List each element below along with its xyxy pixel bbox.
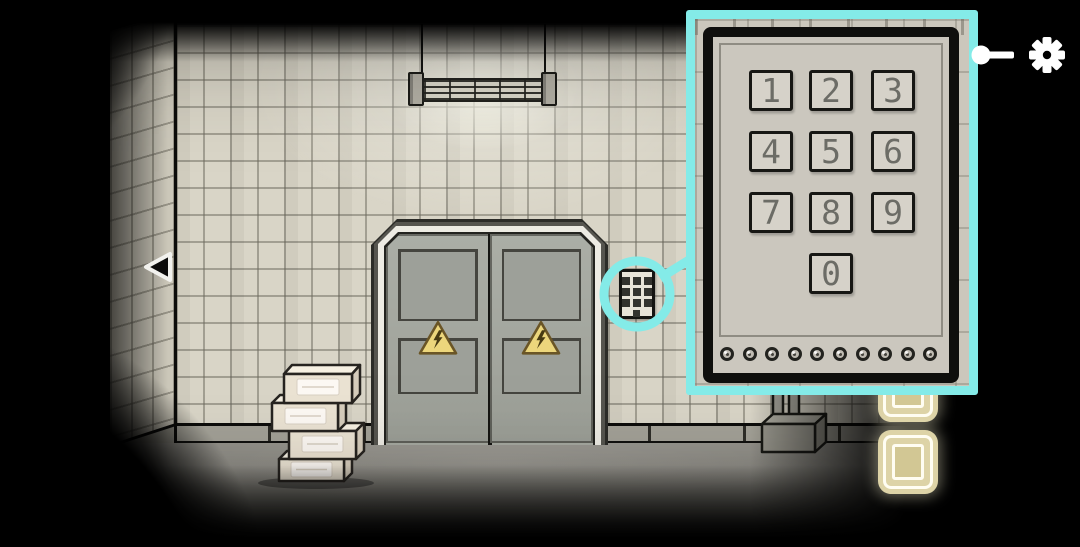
- keypad-key-7[interactable]: 7: [749, 192, 793, 233]
- keypad-key-3[interactable]: 3: [871, 70, 915, 111]
- indicator-light: [923, 347, 937, 361]
- keypad-device: 1234567890: [703, 27, 959, 383]
- indicator-light: [901, 347, 915, 361]
- keypad-key-6[interactable]: 6: [871, 131, 915, 172]
- indicator-light: [833, 347, 847, 361]
- left-arrow-icon[interactable]: [140, 250, 176, 284]
- box-top: [284, 365, 360, 374]
- indicator-light: [743, 347, 757, 361]
- indicator-light: [765, 347, 779, 361]
- gear-icon[interactable]: [1029, 37, 1065, 73]
- indicator-light: [720, 347, 734, 361]
- indicator-light: [788, 347, 802, 361]
- keypad-face: 1234567890: [713, 37, 949, 373]
- inventory-slot[interactable]: [878, 430, 938, 494]
- keypad-key-0[interactable]: 0: [809, 253, 853, 294]
- game-scene: 1234567890: [0, 0, 1080, 547]
- keypad-key-1[interactable]: 1: [749, 70, 793, 111]
- indicator-light: [856, 347, 870, 361]
- keypad-key-2[interactable]: 2: [809, 70, 853, 111]
- keypad-key-9[interactable]: 9: [871, 192, 915, 233]
- key-icon[interactable]: [969, 43, 1019, 67]
- keypad-key-4[interactable]: 4: [749, 131, 793, 172]
- pipe-base: [762, 391, 826, 452]
- keypad-zoom-popup: 1234567890: [686, 10, 978, 395]
- box-stack[interactable]: [258, 365, 374, 489]
- indicator-light: [810, 347, 824, 361]
- indicator-light: [878, 347, 892, 361]
- keypad-key-5[interactable]: 5: [809, 131, 853, 172]
- keypad-key-8[interactable]: 8: [809, 192, 853, 233]
